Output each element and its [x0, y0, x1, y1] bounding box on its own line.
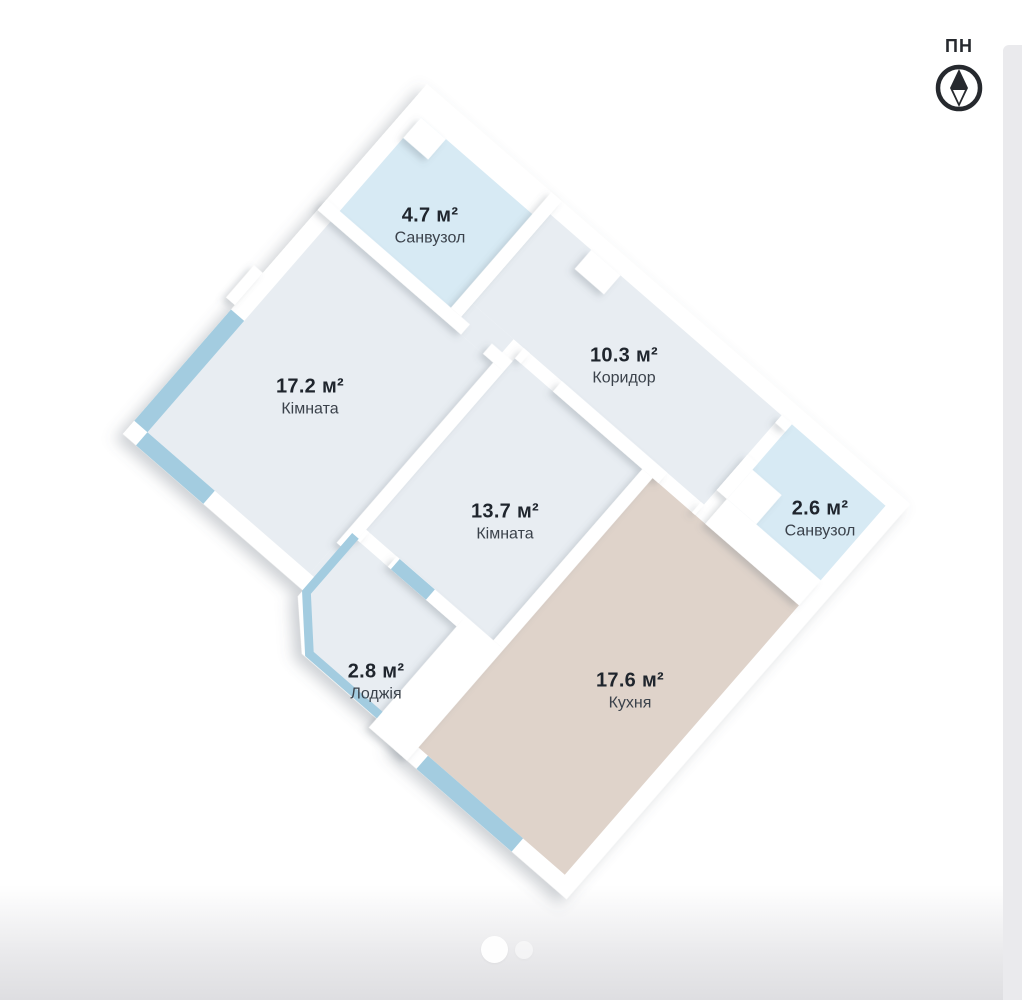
scrollbar[interactable] [1003, 45, 1022, 1000]
floor-plan-svg [0, 0, 1022, 1000]
carousel-dot-active[interactable] [481, 936, 508, 963]
compass: ПН [926, 36, 992, 132]
image-carousel-dots [0, 934, 1022, 966]
floor-plan-group [75, 76, 911, 899]
carousel-dot-inactive[interactable] [515, 941, 533, 959]
listing-page: ПН 4.7 м²Санвузол17.2 м²Кімната10.3 м²Ко… [0, 0, 1022, 1000]
compass-north-label: ПН [926, 36, 992, 57]
